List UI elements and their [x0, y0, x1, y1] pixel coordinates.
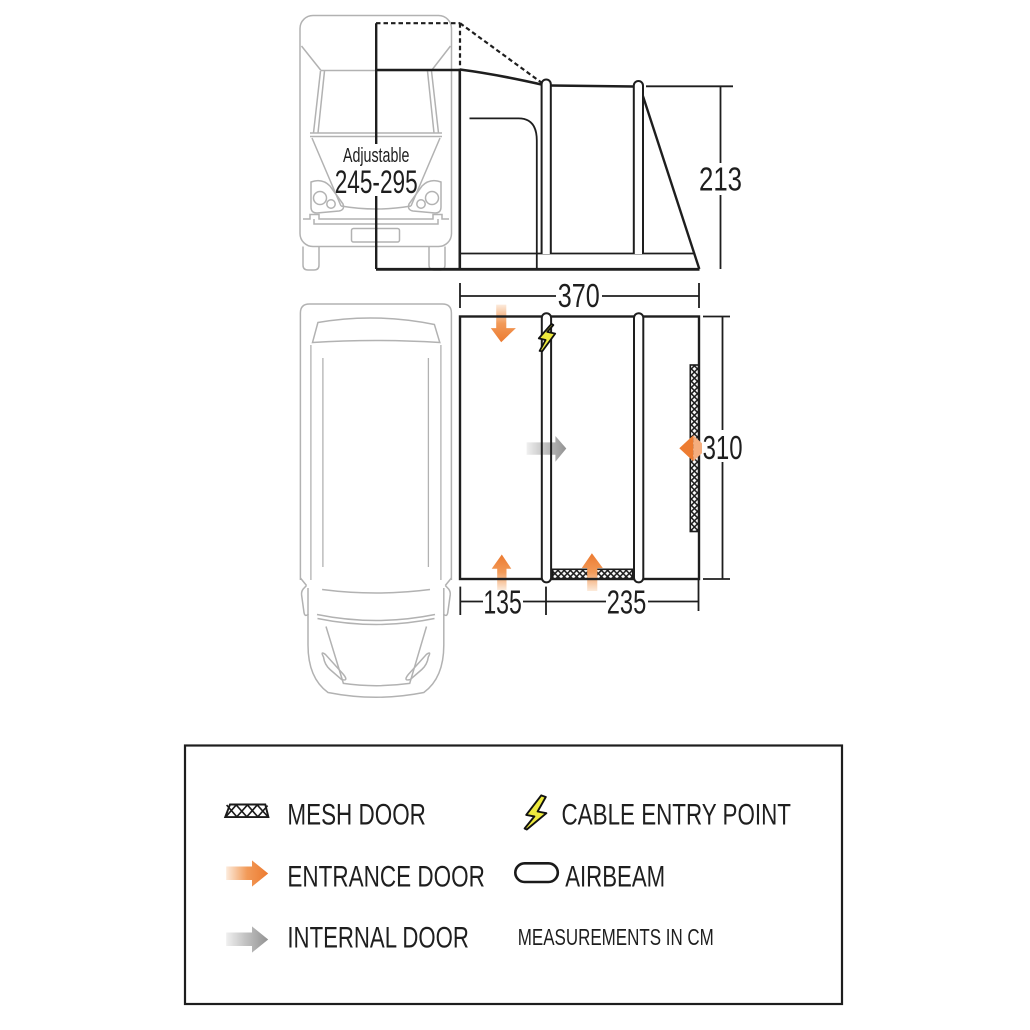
svg-text:INTERNAL DOOR: INTERNAL DOOR — [287, 922, 469, 955]
svg-text:370: 370 — [558, 277, 600, 314]
svg-text:ENTRANCE DOOR: ENTRANCE DOOR — [287, 861, 485, 894]
svg-text:135: 135 — [483, 584, 522, 621]
svg-text:MEASUREMENTS IN CM: MEASUREMENTS IN CM — [518, 924, 714, 950]
svg-text:235: 235 — [607, 584, 647, 621]
svg-text:245-295: 245-295 — [335, 164, 418, 200]
svg-text:213: 213 — [699, 161, 742, 198]
svg-text:CABLE ENTRY POINT: CABLE ENTRY POINT — [562, 799, 792, 832]
svg-text:MESH DOOR: MESH DOOR — [287, 799, 426, 832]
svg-text:310: 310 — [703, 429, 743, 466]
svg-text:AIRBEAM: AIRBEAM — [565, 861, 665, 894]
